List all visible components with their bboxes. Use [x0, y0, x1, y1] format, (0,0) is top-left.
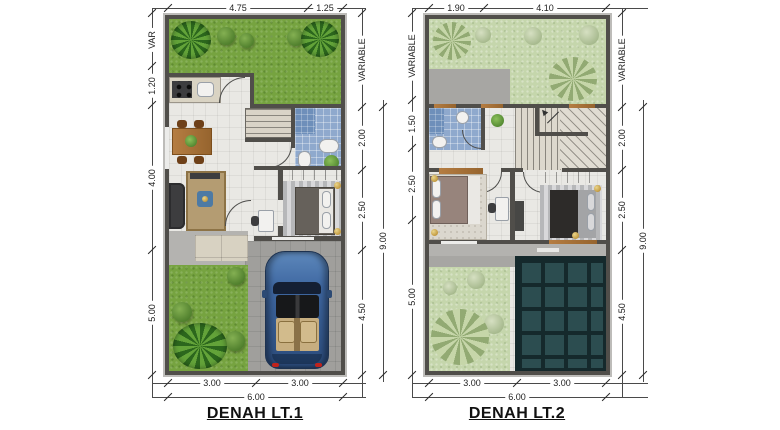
dim-label: 4.50 [357, 300, 367, 324]
car [265, 251, 329, 369]
stair-rail [535, 132, 588, 136]
dim-label: 2.50 [357, 198, 367, 222]
plan-lt1-title: DENAH LT.1 [207, 405, 303, 423]
chair-icon [177, 120, 187, 128]
lamp-icon [594, 185, 601, 192]
lamp-icon [334, 182, 341, 189]
bush-icon [524, 27, 542, 45]
car-seat [300, 321, 317, 343]
lamp-icon [572, 232, 579, 239]
closet [292, 170, 338, 180]
dresser [515, 201, 524, 231]
shower-area [429, 108, 444, 134]
wall [481, 108, 485, 150]
dim-label: 5.00 [407, 285, 417, 309]
bathtub-icon [319, 139, 339, 153]
desk [495, 197, 509, 221]
sink-icon [197, 82, 214, 97]
car-taillight [315, 363, 322, 367]
desk-chair [488, 203, 496, 213]
plant-icon [491, 114, 504, 127]
glass-canopy-roof [515, 256, 606, 371]
car-seat [278, 321, 295, 343]
shower-area [295, 108, 315, 134]
car-console [294, 318, 300, 351]
desk [258, 210, 274, 232]
dim-label: 9.00 [378, 229, 388, 253]
dim-label: 1.25 [313, 3, 337, 13]
door-arc [269, 145, 292, 168]
lamp-icon [431, 229, 438, 236]
dim-label: 4.10 [533, 3, 557, 13]
lamp-icon [334, 228, 341, 235]
dim-label: 4.50 [617, 300, 627, 324]
dim-line [412, 383, 648, 384]
dim-line [152, 383, 366, 384]
floor-plan-sheet: 4.75 1.25 VAR 1.20 4.00 5.00 VARIABLE 2.… [0, 0, 780, 430]
dim-label: 3.00 [288, 378, 312, 388]
dim-label: 3.00 [200, 378, 224, 388]
chair-icon [177, 156, 187, 164]
walkway [429, 256, 515, 267]
balcony-deck [429, 244, 606, 256]
door-arc [225, 200, 251, 226]
dim-label: 4.75 [226, 3, 250, 13]
bush-icon [475, 27, 491, 43]
window [272, 237, 314, 240]
plan-lt1 [165, 15, 345, 375]
dim-label: VAR [147, 28, 157, 52]
bush-icon [467, 271, 485, 289]
wall [245, 138, 295, 142]
dim-label: VARIABLE [357, 35, 367, 84]
car-windshield [273, 282, 321, 294]
stove-icon [172, 81, 192, 98]
bush-icon [443, 281, 457, 295]
car-taillight [272, 363, 279, 367]
bed-sheet [468, 176, 480, 224]
palm-tree-pale-icon [549, 57, 597, 101]
lamp-icon [431, 175, 438, 182]
plan-lt2 [425, 15, 610, 375]
dim-label: 6.00 [244, 392, 268, 402]
dim-label: 6.00 [505, 392, 529, 402]
bush-icon [579, 25, 599, 45]
dim-label: 9.00 [638, 229, 648, 253]
pillow [322, 212, 331, 229]
bush-icon [217, 27, 235, 45]
door-arc [219, 77, 245, 103]
pillow [587, 193, 595, 211]
dim-label: 2.50 [407, 172, 417, 196]
pillow [432, 200, 441, 219]
palm-tree-icon [171, 21, 211, 59]
bush-icon [227, 267, 245, 285]
car-front-seats [276, 295, 319, 318]
sill [537, 248, 559, 252]
dim-label: 5.00 [147, 301, 157, 325]
palm-tree-pale-icon [431, 309, 489, 365]
car-trunk [272, 354, 322, 364]
dim-label: 3.00 [460, 378, 484, 388]
plant-icon [185, 135, 197, 147]
dim-label: VARIABLE [407, 31, 417, 80]
toilet-icon [432, 136, 447, 148]
pillow [587, 213, 595, 231]
dim-label: 4.00 [147, 166, 157, 190]
dim-label: 2.50 [617, 198, 627, 222]
roof-deck [429, 69, 510, 104]
desk-chair [251, 216, 259, 226]
tv-icon [190, 173, 220, 179]
wall [291, 108, 295, 148]
window [165, 127, 169, 169]
bush-icon [239, 33, 254, 48]
car-mirror [262, 290, 267, 298]
wall [250, 73, 254, 108]
pillow [322, 191, 331, 208]
chair-icon [194, 156, 204, 164]
wall [429, 168, 439, 172]
bush-icon [225, 331, 245, 351]
sofa [169, 183, 185, 229]
bed2-duvet [550, 190, 578, 238]
sink-icon [456, 111, 469, 124]
palm-tree-pale-icon [433, 22, 471, 60]
dim-label: 2.00 [357, 126, 367, 150]
stairs [245, 108, 295, 138]
car-mirror [327, 290, 332, 298]
dim-label: 1.20 [147, 74, 157, 98]
closet [545, 172, 591, 183]
dim-label: 1.50 [407, 112, 417, 136]
stair-rail [535, 108, 539, 136]
bush-icon [172, 302, 192, 322]
dim-line [412, 397, 648, 398]
stairs-winders [560, 108, 606, 170]
dim-label: 2.00 [617, 126, 627, 150]
palm-tree-icon [173, 323, 227, 369]
rug-medallion [202, 196, 208, 202]
dim-label: 1.90 [444, 3, 468, 13]
dim-label: 3.00 [550, 378, 574, 388]
plan-lt2-title: DENAH LT.2 [469, 405, 565, 423]
chair-icon [194, 120, 204, 128]
terrace-tiles [195, 235, 248, 261]
palm-tree-icon [301, 21, 339, 57]
dim-label: VARIABLE [617, 35, 627, 84]
